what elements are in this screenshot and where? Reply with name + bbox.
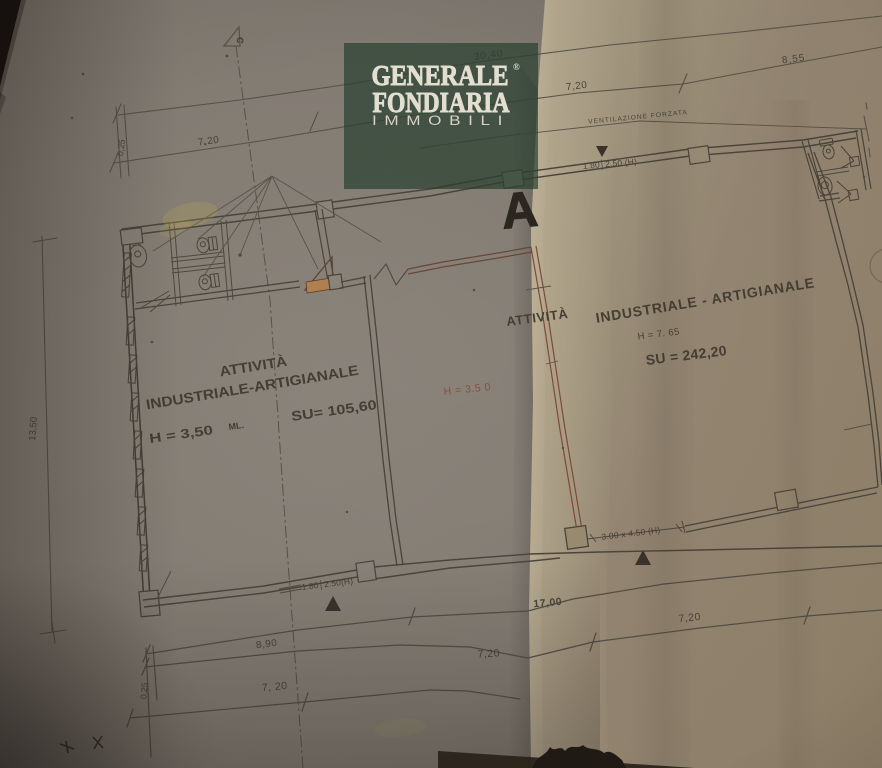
svg-text:®: ® [513,62,520,72]
svg-text:IMMOBILI: IMMOBILI [372,113,510,128]
